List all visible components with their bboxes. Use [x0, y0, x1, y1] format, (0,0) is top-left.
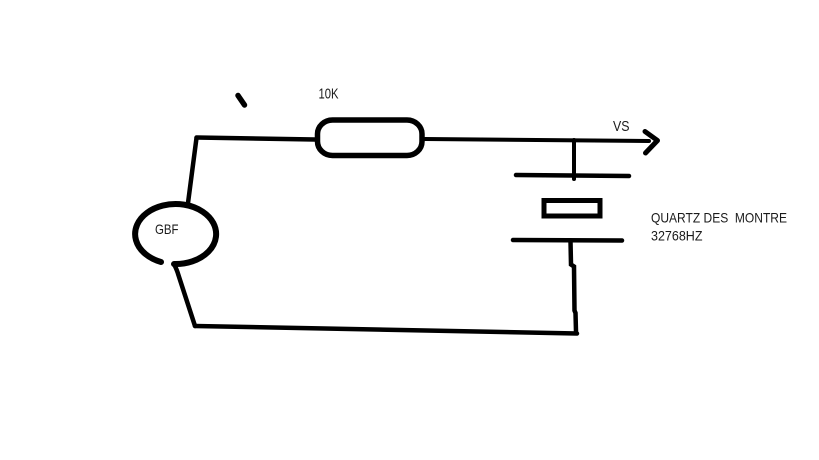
svg-text:QUARTZ DES MONTRE: QUARTZ DES MONTRE [651, 210, 787, 226]
svg-text:10K: 10K [319, 86, 339, 103]
svg-text:GBF: GBF [155, 221, 179, 237]
svg-text:32768HZ: 32768HZ [651, 228, 703, 244]
svg-text:VS: VS [613, 118, 630, 135]
